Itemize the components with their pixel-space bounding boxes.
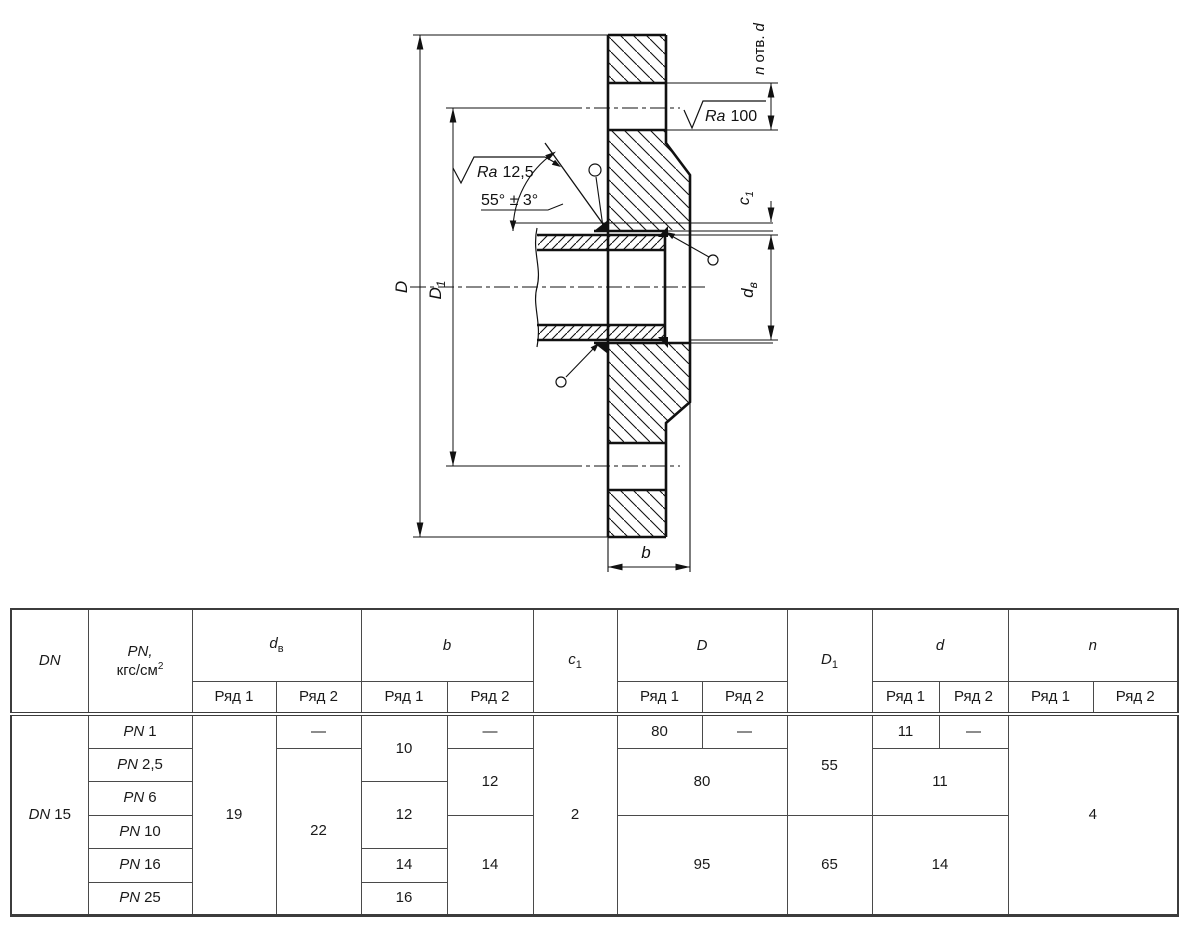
header-d-row2: Ряд 2: [939, 681, 1008, 714]
cell-b-r2: 14: [447, 815, 533, 915]
cell-b-r1: 16: [361, 882, 447, 915]
label-D1: D1: [426, 281, 448, 300]
cell-D1: 55: [787, 714, 872, 815]
cell-pn: PN25: [88, 882, 192, 915]
header-dn: DN: [11, 609, 88, 714]
label-c1: c1: [736, 191, 756, 205]
cell-b-r1: 14: [361, 848, 447, 882]
flange-hatching: [609, 36, 689, 536]
header-b-row2: Ряд 2: [447, 681, 533, 714]
header-dv: dв: [192, 609, 361, 681]
cell-D1: 65: [787, 815, 872, 915]
header-n-row1: Ряд 1: [1008, 681, 1093, 714]
dimension-table: DN PN,кгс/см2 dв b c1 D D1 d n Ряд 1 Ряд…: [10, 608, 1179, 917]
label-n-holes: nотв.d: [751, 22, 768, 74]
cell-b-r1: 12: [361, 781, 447, 848]
header-pn: PN,кгс/см2: [88, 609, 192, 714]
header-d-row1: Ряд 1: [872, 681, 939, 714]
table-row-pn1: DN15 PN1 19 — 10 — 2 80 — 55 11 — 4: [11, 714, 1178, 748]
label-ra-face: Ra12,5: [477, 164, 534, 181]
standard-page: Ra12,5 Ra100 55° ± 3° b D D1 dв c1 nотв.…: [0, 0, 1185, 925]
header-d: d: [872, 609, 1008, 681]
header-dv-row2: Ряд 2: [276, 681, 361, 714]
header-D-row2: Ряд 2: [702, 681, 787, 714]
header-D: D: [617, 609, 787, 681]
label-b: b: [641, 543, 650, 562]
cell-d: 14: [872, 815, 1008, 915]
header-dv-row1: Ряд 1: [192, 681, 276, 714]
cell-pn: PN16: [88, 848, 192, 882]
label-ra-holes: Ra100: [705, 108, 757, 125]
header-c1: c1: [533, 609, 617, 714]
cell-D: 95: [617, 815, 787, 915]
flange-outline: [537, 35, 690, 537]
cell-b-r2: —: [447, 714, 533, 748]
cell-b-r2: 12: [447, 748, 533, 815]
label-angle: 55° ± 3°: [481, 192, 538, 209]
header-b: b: [361, 609, 533, 681]
cell-D-r2: —: [702, 714, 787, 748]
cell-dn: DN15: [11, 714, 88, 915]
header-n: n: [1008, 609, 1178, 681]
header-D-row1: Ряд 1: [617, 681, 702, 714]
header-n-row2: Ряд 2: [1093, 681, 1178, 714]
cell-dv-r1: 19: [192, 714, 276, 915]
cell-pn: PN2,5: [88, 748, 192, 781]
cell-d-r2: —: [939, 714, 1008, 748]
cell-D: 80: [617, 748, 787, 815]
cell-D-r1: 80: [617, 714, 702, 748]
flange-section-drawing: Ra12,5 Ra100 55° ± 3° b D D1 dв c1 nотв.…: [0, 0, 1185, 592]
cell-n: 4: [1008, 714, 1178, 915]
label-dv: dв: [738, 282, 760, 298]
cell-d: 11: [872, 748, 1008, 815]
cell-b-r1: 10: [361, 714, 447, 781]
cell-pn: PN6: [88, 781, 192, 815]
cell-dv-r2: 22: [276, 748, 361, 915]
cell-pn: PN1: [88, 714, 192, 748]
header-D1: D1: [787, 609, 872, 714]
cell-dv-r2: —: [276, 714, 361, 748]
cell-d-r1: 11: [872, 714, 939, 748]
label-D: D: [392, 281, 411, 293]
table-header-row-1: DN PN,кгс/см2 dв b c1 D D1 d n: [11, 609, 1178, 681]
cell-c1: 2: [533, 714, 617, 915]
cell-pn: PN10: [88, 815, 192, 848]
header-b-row1: Ряд 1: [361, 681, 447, 714]
